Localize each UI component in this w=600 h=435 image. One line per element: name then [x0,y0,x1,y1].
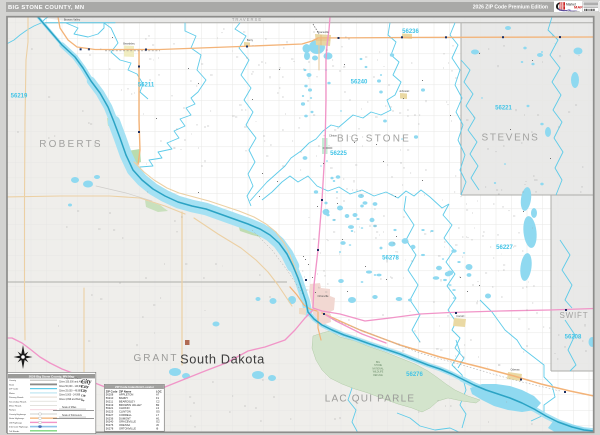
svg-text:State Highways: State Highways [9,417,25,420]
svg-text:Scale of Kilometers: Scale of Kilometers [62,414,83,417]
svg-text:REFUGE: REFUGE [373,375,383,377]
svg-text:STEVENS: STEVENS [482,133,540,144]
svg-text:56225: 56225 [330,151,347,157]
svg-text:56221: 56221 [106,406,114,410]
svg-text:L3: L3 [156,406,159,410]
svg-text:Cities 25,000 - 49,999: Cities 25,000 - 49,999 [59,389,82,392]
svg-text:Beardsley: Beardsley [123,42,135,46]
svg-text:CLINTON: CLINTON [119,410,131,414]
svg-text:BEARDSLEY: BEARDSLEY [119,399,135,403]
svg-text:ODESSA: ODESSA [119,423,130,427]
svg-text:Odessa: Odessa [511,368,520,372]
svg-text:BIG: BIG [376,362,380,364]
svg-text:G2: G2 [156,420,160,424]
svg-text:State: State [9,383,15,386]
svg-text:ZIP Code: ZIP Code [9,389,19,391]
svg-text:56276: 56276 [406,372,423,378]
svg-text:56236: 56236 [106,416,114,420]
svg-text:Ortonville: Ortonville [318,294,330,298]
svg-text:Ramps: Ramps [9,410,17,412]
svg-text:J6: J6 [156,423,159,427]
svg-text:SWIFT: SWIFT [560,311,589,320]
svg-text:56219: 56219 [106,403,114,407]
svg-text:56211: 56211 [106,399,114,403]
svg-text:County: County [9,379,17,382]
svg-text:STONE: STONE [374,365,382,367]
svg-text:City: City [81,384,90,389]
svg-text:G5: G5 [156,410,160,414]
svg-text:Johnson: Johnson [399,89,409,93]
svg-text:56208: 56208 [106,393,114,397]
svg-text:US Highways: US Highways [9,422,23,424]
svg-text:CHOKIO: CHOKIO [119,406,130,410]
svg-text:BIG STONE COUNTY, MN: BIG STONE COUNTY, MN [8,5,84,11]
svg-text:South Dakota: South Dakota [180,352,265,367]
svg-text:Water: Water [9,392,15,395]
svg-text:2026 ZIP Code Premium Edition: 2026 ZIP Code Premium Edition [473,5,548,11]
svg-text:ZIP Code Index/Grid Locator: ZIP Code Index/Grid Locator [115,385,155,389]
svg-text:LAC QUI PARLE: LAC QUI PARLE [325,394,415,405]
svg-text:A7: A7 [156,393,160,397]
svg-text:County Highways: County Highways [9,413,27,416]
svg-text:B2: B2 [156,403,160,407]
svg-text:APPLETON: APPLETON [119,393,133,397]
svg-text:Barry: Barry [247,38,254,42]
svg-text:Correll: Correll [456,314,464,318]
svg-text:56211: 56211 [138,83,155,89]
svg-text:56240: 56240 [351,80,368,86]
svg-text:Cities 5,000 - 24,999: Cities 5,000 - 24,999 [59,394,81,397]
svg-text:ORTONVILLE: ORTONVILLE [119,427,136,431]
svg-text:BROWNS VALLEY: BROWNS VALLEY [119,403,142,407]
svg-text:NATIONAL: NATIONAL [372,367,384,370]
svg-text:WILDLIFE: WILDLIFE [373,372,384,374]
svg-text:Scale of Miles: Scale of Miles [62,407,77,409]
svg-text:BIG STONE: BIG STONE [337,134,411,145]
svg-text:Populated Places: Populated Places [64,377,82,380]
svg-text:Cities 4,999 and Below: Cities 4,999 and Below [59,398,83,401]
svg-text:56221: 56221 [495,106,512,112]
svg-text:Cities 50,000 - 149,999: Cities 50,000 - 149,999 [59,385,83,388]
svg-text:GRACEVILLE: GRACEVILLE [119,420,136,424]
svg-text:GRANT: GRANT [134,353,179,364]
svg-text:ZIP Code: ZIP Code [106,389,118,393]
svg-text:Minor Roads: Minor Roads [9,405,22,408]
svg-text:ROBERTS: ROBERTS [39,139,103,150]
svg-text:Clinton: Clinton [329,134,338,138]
svg-text:Interstate Highways: Interstate Highways [9,426,29,429]
svg-text:TRAVERSE: TRAVERSE [232,17,262,22]
svg-text:C2: C2 [156,399,160,403]
svg-text:City: City [81,393,87,397]
svg-text:Toll Roads: Toll Roads [9,431,20,433]
svg-text:H1: H1 [156,416,160,420]
svg-text:DUMONT: DUMONT [119,416,131,420]
svg-text:56276: 56276 [106,423,114,427]
svg-text:ZIP Name: ZIP Name [119,389,132,393]
svg-text:LOC: LOC [156,389,162,393]
svg-text:56236: 56236 [402,29,419,35]
svg-text:Graceville: Graceville [317,30,329,34]
svg-text:56219: 56219 [11,94,28,100]
svg-text:Primary Roads: Primary Roads [9,396,24,399]
svg-text:56225: 56225 [106,410,114,414]
svg-text:56208: 56208 [565,335,582,341]
svg-text:Secondary Roads: Secondary Roads [9,400,27,403]
svg-text:56278: 56278 [106,427,114,431]
svg-text:Custom Mapping: Custom Mapping [566,9,580,12]
svg-text:Browns Valley: Browns Valley [64,18,81,22]
svg-text:56227: 56227 [496,245,513,251]
svg-text:56240: 56240 [106,420,114,424]
svg-text:56278: 56278 [382,256,399,262]
